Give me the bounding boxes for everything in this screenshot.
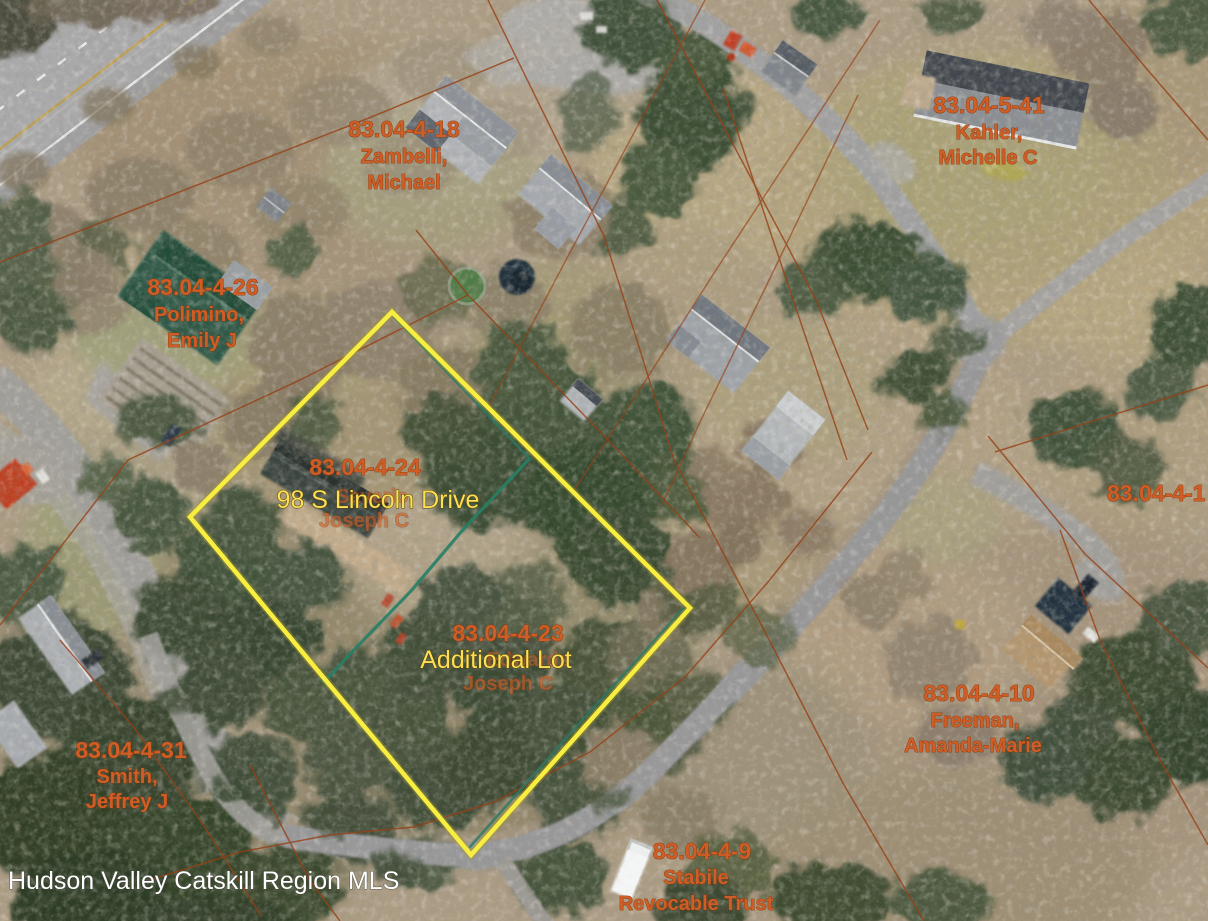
svg-text:83.04-4-18: 83.04-4-18 [348, 116, 459, 142]
svg-text:Zambelli,: Zambelli, [361, 146, 448, 168]
svg-text:83.04-5-41: 83.04-5-41 [933, 92, 1044, 118]
svg-text:Revocable Trust: Revocable Trust [619, 893, 774, 915]
svg-text:Stabile: Stabile [663, 867, 729, 889]
svg-text:83.04-4-23: 83.04-4-23 [452, 620, 563, 646]
svg-text:83.04-4-24: 83.04-4-24 [309, 454, 420, 480]
svg-text:Kahler,: Kahler, [956, 122, 1023, 144]
svg-text:Additional Lot: Additional Lot [420, 646, 572, 674]
svg-text:Michael: Michael [367, 172, 440, 194]
svg-text:Emily J: Emily J [167, 330, 237, 352]
svg-text:83.04-4-26: 83.04-4-26 [147, 274, 258, 300]
svg-text:Michelle C: Michelle C [939, 147, 1038, 169]
svg-text:Amanda-Marie: Amanda-Marie [904, 735, 1042, 757]
svg-text:98 S Lincoln Drive: 98 S Lincoln Drive [277, 486, 480, 514]
svg-text:83.04-4-31: 83.04-4-31 [75, 737, 186, 763]
svg-text:Freeman,: Freeman, [931, 710, 1020, 732]
svg-text:Joseph C: Joseph C [463, 673, 553, 695]
svg-text:Polimino,: Polimino, [154, 304, 244, 326]
svg-text:Smith,: Smith, [96, 766, 157, 788]
svg-text:83.04-4-1: 83.04-4-1 [1107, 480, 1206, 506]
svg-text:Hudson Valley Catskill Region: Hudson Valley Catskill Region MLS [8, 867, 399, 895]
svg-text:83.04-4-10: 83.04-4-10 [923, 680, 1034, 706]
svg-text:83.04-4-9: 83.04-4-9 [653, 838, 751, 864]
svg-text:Jeffrey J: Jeffrey J [86, 791, 168, 813]
